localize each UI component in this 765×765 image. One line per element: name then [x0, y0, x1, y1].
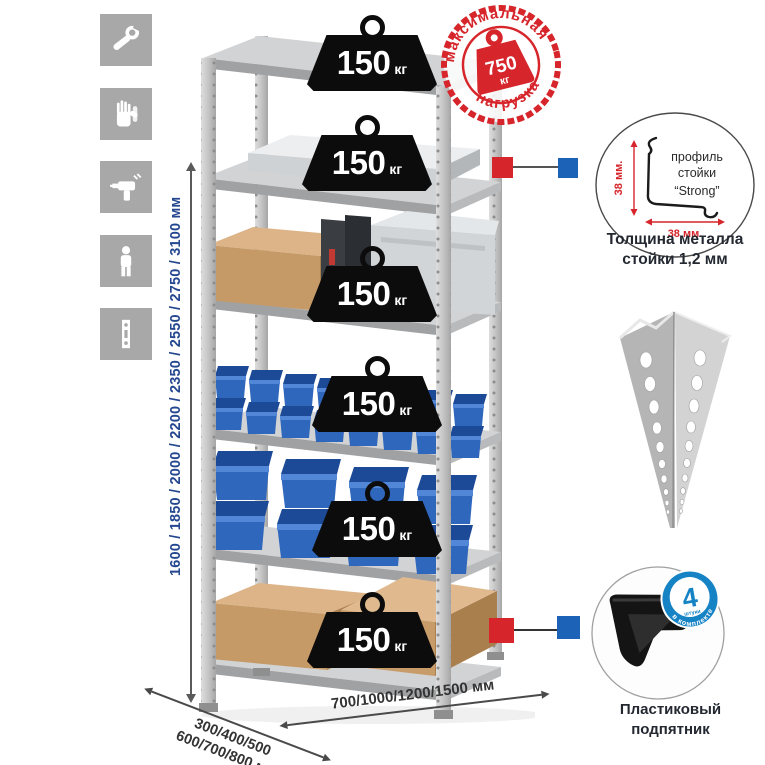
callout-line-top [512, 166, 560, 168]
load-unit: кг [394, 638, 407, 654]
load-value: 150 [332, 144, 386, 182]
wrench-icon [109, 23, 143, 57]
callout-marker-red-bottom [489, 618, 514, 643]
height-dimension-line [190, 170, 192, 694]
load-unit: кг [399, 527, 412, 543]
load-value: 150 [342, 510, 396, 548]
load-value: 150 [342, 385, 396, 423]
included-count-badge: 4 штуки в комплекте [658, 567, 722, 631]
product-infographic: 1600 / 1850 / 2000 / 2200 / 2350 / 2550 … [0, 0, 765, 765]
gloves-feature-tile [100, 88, 152, 140]
callout-line-bottom [513, 629, 559, 631]
load-value: 150 [337, 621, 391, 659]
load-unit: кг [394, 292, 407, 308]
profile-dim-vertical: 38 мм. [613, 161, 625, 196]
callout-marker-red-top [492, 157, 513, 178]
shelf-load-badge: 150кг [307, 10, 437, 91]
callout-marker-blue-top [558, 158, 578, 178]
shelf-load-badge: 150кг [312, 351, 442, 432]
profile-label-1: профиль [671, 150, 723, 164]
profile-label-3: “Strong” [674, 184, 719, 198]
height-dimension-label: 1600 / 1850 / 2000 / 2200 / 2350 / 2550 … [168, 204, 186, 576]
shelf-load-badge: 150кг [312, 476, 442, 557]
post-profile-icon [109, 317, 143, 351]
shelf-load-badge: 150кг [307, 241, 437, 322]
profile-label-2: стойки [678, 166, 716, 180]
gloves-icon [109, 97, 143, 131]
profile-caption-line2: стойки 1,2 мм [592, 250, 758, 270]
post-feature-tile [100, 308, 152, 360]
shelf-load-badge: 150кг [307, 587, 437, 668]
foot-caption-line1: Пластиковый [598, 700, 743, 720]
person-feature-tile [100, 235, 152, 287]
shelf-load-badge: 150кг [302, 110, 432, 191]
foot-caption-line2: подпятник [598, 720, 743, 740]
drill-icon [109, 170, 143, 204]
angle-post-image [596, 296, 748, 534]
load-value: 150 [337, 44, 391, 82]
load-value: 150 [337, 275, 391, 313]
drill-feature-tile [100, 161, 152, 213]
load-unit: кг [394, 61, 407, 77]
foot-caption: Пластиковый подпятник [598, 700, 743, 740]
load-unit: кг [389, 161, 402, 177]
max-load-stamp: максимальная нагрузка 750 кг [428, 0, 574, 138]
callout-marker-blue-bottom [557, 616, 580, 639]
assembly-feature-tile [100, 14, 152, 66]
profile-caption-line1: Толщина металла [592, 230, 758, 250]
load-unit: кг [399, 402, 412, 418]
person-icon [109, 244, 143, 278]
profile-caption: Толщина металла стойки 1,2 мм [592, 230, 758, 271]
